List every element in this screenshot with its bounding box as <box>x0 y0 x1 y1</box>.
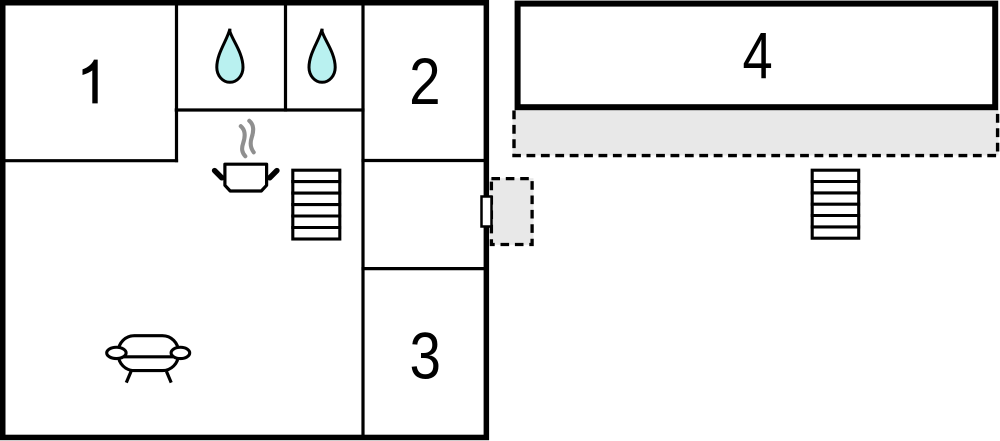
svg-text:2: 2 <box>409 45 440 118</box>
svg-text:4: 4 <box>743 20 773 93</box>
svg-text:3: 3 <box>409 319 440 392</box>
